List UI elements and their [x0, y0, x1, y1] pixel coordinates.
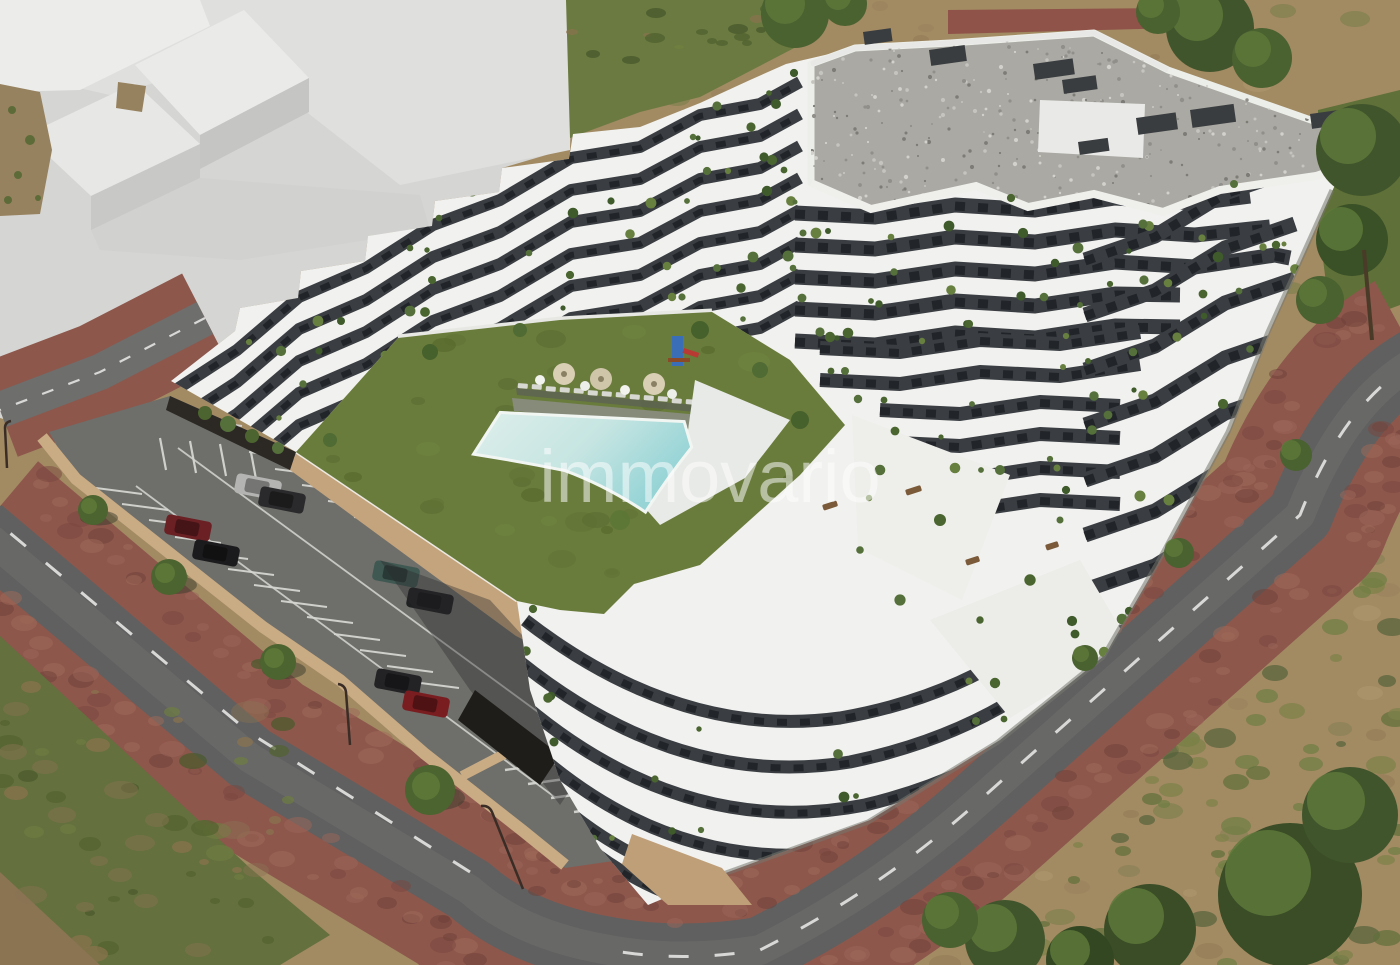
svg-text:immovario: immovario: [539, 435, 880, 518]
